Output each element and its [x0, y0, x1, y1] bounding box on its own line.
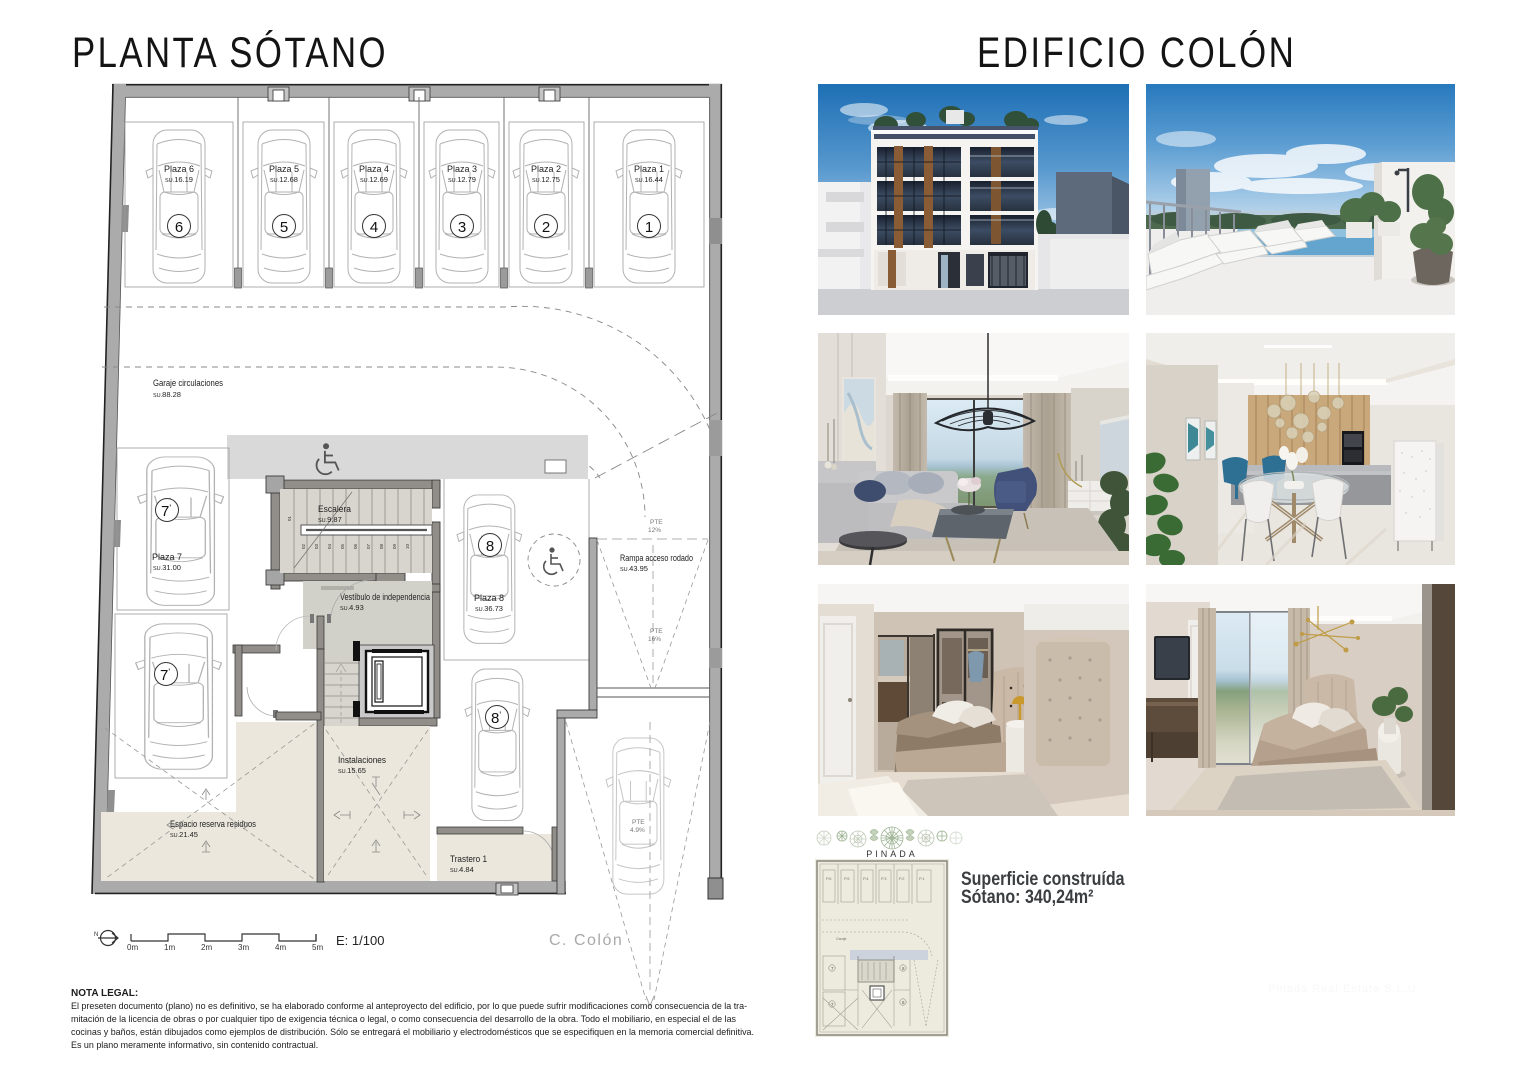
- svg-text:Instalaciones: Instalaciones: [338, 755, 386, 765]
- svg-text:1m: 1m: [164, 943, 175, 952]
- svg-text:Plaza 8: Plaza 8: [474, 593, 504, 603]
- svg-text:08: 08: [379, 543, 384, 549]
- svg-text:12%: 12%: [648, 527, 661, 534]
- svg-text:P.3: P.3: [881, 876, 887, 881]
- svg-text:1: 1: [645, 219, 653, 236]
- svg-text:10: 10: [405, 543, 410, 549]
- svg-text:Escalera: Escalera: [318, 504, 351, 514]
- svg-text:2m: 2m: [201, 943, 212, 952]
- svg-text:PTE: PTE: [650, 519, 663, 526]
- svg-text:C. Colón: C. Colón: [549, 932, 623, 949]
- svg-text:Plaza 1: Plaza 1: [634, 164, 664, 174]
- svg-text:P.2: P.2: [899, 876, 905, 881]
- svg-text:Espacio reserva residuos: Espacio reserva residuos: [170, 819, 256, 829]
- svg-text:Plaza 2: Plaza 2: [531, 164, 561, 174]
- svg-text:P.5: P.5: [844, 876, 850, 881]
- svg-text:Plaza 3: Plaza 3: [447, 164, 477, 174]
- svg-text:Trastero 1: Trastero 1: [450, 854, 487, 864]
- svg-text:06: 06: [353, 543, 358, 549]
- svg-text:6: 6: [175, 219, 183, 236]
- svg-text:Plaza 6: Plaza 6: [164, 164, 194, 174]
- svg-text:Vestíbulo de independencia: Vestíbulo de independencia: [340, 592, 430, 602]
- svg-text:3: 3: [458, 219, 466, 236]
- svg-text:P.4: P.4: [863, 876, 869, 881]
- svg-text:PTE: PTE: [632, 819, 645, 826]
- svg-text:0m: 0m: [127, 943, 138, 952]
- svg-text:5m: 5m: [312, 943, 323, 952]
- svg-text:07: 07: [366, 543, 371, 549]
- svg-text:09: 09: [392, 543, 397, 549]
- svg-text:4: 4: [370, 219, 378, 236]
- svg-text:Plaza 4: Plaza 4: [359, 164, 389, 174]
- svg-text:04: 04: [327, 543, 332, 549]
- svg-text:16%: 16%: [648, 636, 661, 643]
- svg-text:5: 5: [280, 219, 288, 236]
- svg-text:P.1: P.1: [919, 876, 925, 881]
- svg-text:2: 2: [542, 219, 550, 236]
- svg-text:03: 03: [314, 543, 319, 549]
- svg-text:Plaza 5: Plaza 5: [269, 164, 299, 174]
- svg-text:Rampa acceso rodado: Rampa acceso rodado: [620, 553, 693, 563]
- svg-text:Garaje: Garaje: [836, 937, 847, 941]
- svg-text:02: 02: [301, 543, 306, 549]
- svg-text:4.9%: 4.9%: [630, 827, 645, 834]
- svg-text:4m: 4m: [275, 943, 286, 952]
- svg-text:05: 05: [340, 543, 345, 549]
- svg-text:01: 01: [287, 515, 292, 521]
- svg-text:Plaza 7: Plaza 7: [152, 552, 182, 562]
- svg-text:E: 1/100: E: 1/100: [336, 933, 384, 948]
- svg-text:P.6: P.6: [826, 876, 832, 881]
- svg-text:Garaje circulaciones: Garaje circulaciones: [153, 378, 223, 388]
- svg-text:3m: 3m: [238, 943, 249, 952]
- svg-text:PTE: PTE: [650, 628, 663, 635]
- svg-text:8: 8: [486, 538, 494, 555]
- svg-text:N: N: [94, 932, 98, 938]
